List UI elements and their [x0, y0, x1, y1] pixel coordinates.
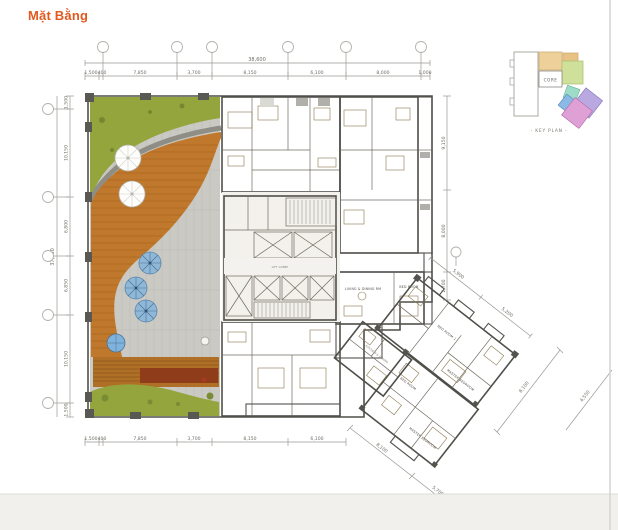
dim-label: 1,000 [418, 70, 431, 76]
dim-label: 8,150 [243, 436, 256, 442]
dim-label: 1,500 [64, 403, 70, 416]
dim-label: 3,700 [187, 70, 200, 76]
room-label: BED ROOM [399, 376, 417, 391]
dim-label: 4,550 [579, 389, 592, 403]
dim-label: 5,200 [500, 306, 514, 319]
dim-label: 400 [98, 436, 107, 442]
unit-tan-top [222, 97, 340, 192]
dim-label: 7,850 [133, 436, 146, 442]
bottom-strip [0, 494, 618, 530]
dim-label: 5,900 [451, 268, 465, 281]
dim-label: 400 [98, 70, 107, 76]
grid-bubble-wing [451, 247, 461, 257]
unit-pink: BED ROOM MASTER BEDROOM [354, 349, 482, 474]
dim-label: 6,100 [310, 70, 323, 76]
terrace [85, 93, 222, 419]
dim-label: 3,700 [187, 436, 200, 442]
room-label: LIFT LOBBY [272, 265, 289, 269]
dim-label: 8,150 [243, 70, 256, 76]
spa-pool-icon [107, 334, 125, 352]
blue-umbrella-icon [139, 252, 161, 274]
dim-label: 8,000 [441, 224, 447, 237]
diagonal-wing: BED ROOM 1 MASTER BEDROOM BED ROOM MASTE… [315, 244, 540, 474]
unit-olive [340, 97, 432, 253]
white-umbrella-icon [115, 145, 141, 171]
corridor-upper-right [336, 253, 424, 272]
key-plan: CORE - KEY PLAN - [510, 52, 603, 134]
dim-label: 7,850 [133, 70, 146, 76]
balcony [424, 272, 432, 324]
keyplan-tower [514, 52, 538, 116]
keyplan-core-label: CORE [544, 78, 558, 83]
room-label: KITCHEN & DINING [364, 344, 389, 365]
keyplan-caption: - KEY PLAN - [531, 128, 568, 134]
ac-ledge [318, 98, 330, 106]
planter-icon [201, 337, 209, 345]
dim-overall-top: 38,600 [248, 57, 266, 63]
keyplan-unit-tan [539, 52, 562, 70]
balcony-strip [246, 404, 340, 416]
dim-label: 1,500 [84, 70, 97, 76]
dim-label: 8,100 [518, 380, 531, 394]
dim-label: 6,850 [64, 279, 70, 292]
dim-label: 10,150 [64, 145, 70, 161]
ac-unit [420, 152, 430, 158]
ac-unit [420, 204, 430, 210]
core: LIFT LOBBY [222, 192, 340, 322]
balcony-strip [418, 97, 432, 253]
keyplan-unit-green [562, 61, 583, 84]
dim-label: 8,000 [376, 70, 389, 76]
dim-label: 9,150 [441, 136, 447, 149]
floor-plan-canvas: LIVING & DINING RM BED ROOM [0, 0, 618, 530]
white-umbrella-icon [119, 181, 145, 207]
ac-ledge [296, 98, 308, 106]
room-label: BED ROOM 1 [437, 324, 457, 341]
dim-label: 10,150 [64, 351, 70, 367]
wing-upper-dims: 5,900 5,200 [429, 252, 535, 338]
balcony [390, 436, 419, 461]
unit-lavender: BED ROOM 1 MASTER BEDROOM [374, 270, 522, 408]
dim-label: 6,100 [310, 436, 323, 442]
dim-label: 2,700 [441, 279, 447, 292]
room-label: MASTER BEDROOM [446, 368, 475, 392]
red-marker [202, 378, 207, 383]
blue-umbrella-icon [125, 277, 147, 299]
dim-label: 1,500 [64, 96, 70, 109]
dim-label: 1,500 [84, 436, 97, 442]
balcony [260, 98, 274, 106]
room-label: LIVING & DINING RM [345, 287, 381, 291]
blue-umbrella-icon [135, 300, 157, 322]
timber-bench [93, 357, 219, 387]
unit-tan-bottom [222, 322, 340, 416]
dim-label: 6,800 [64, 220, 70, 233]
floor-plan-page: Mặt Bằng [0, 0, 618, 530]
